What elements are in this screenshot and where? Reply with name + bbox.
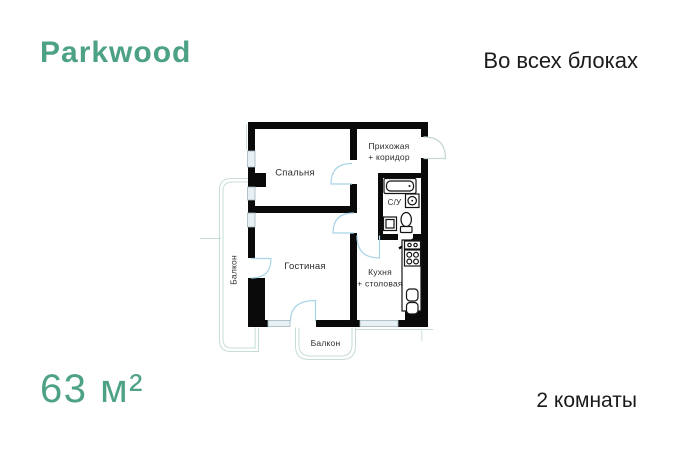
bathtub-icon: [384, 179, 416, 194]
bedroom-door: [331, 164, 352, 185]
balcony-bottom-label: Балкон: [311, 338, 341, 348]
area-label: 63 м²: [40, 367, 144, 412]
windows: [248, 151, 399, 327]
floorplan: Спальня Прихожая + коридор С/У Гостиная …: [195, 100, 465, 370]
kitchen-door: [357, 236, 380, 258]
listing-card: { "brand": { "name": "Parkwood" }, "head…: [0, 0, 680, 453]
hallway-label-line2: + коридор: [368, 152, 410, 162]
availability-text: Во всех блоках: [483, 48, 638, 74]
balcony-left-label: Балкон: [228, 255, 238, 285]
bathroom-sink-icon: [384, 217, 397, 231]
living-room-label: Гостиная: [284, 261, 325, 272]
living-room-door: [333, 213, 354, 233]
washing-machine-icon: [406, 194, 420, 208]
hallway-label-line1: Прихожая: [369, 141, 410, 151]
balcony-bottom-door: [291, 301, 316, 322]
kitchen-label-line1: Кухня: [368, 267, 392, 277]
bedroom-label: Спальня: [275, 168, 315, 179]
toilet-icon: [401, 213, 413, 233]
kitchen-label-line2: + столовая: [357, 278, 403, 288]
bathroom-label: С/У: [388, 198, 402, 207]
stove-icon: [405, 241, 421, 266]
entrance-door: [424, 137, 446, 159]
brand-logo: Parkwood: [40, 36, 191, 70]
balcony-left-door: [252, 259, 272, 279]
room-count-label: 2 комнаты: [536, 389, 637, 413]
